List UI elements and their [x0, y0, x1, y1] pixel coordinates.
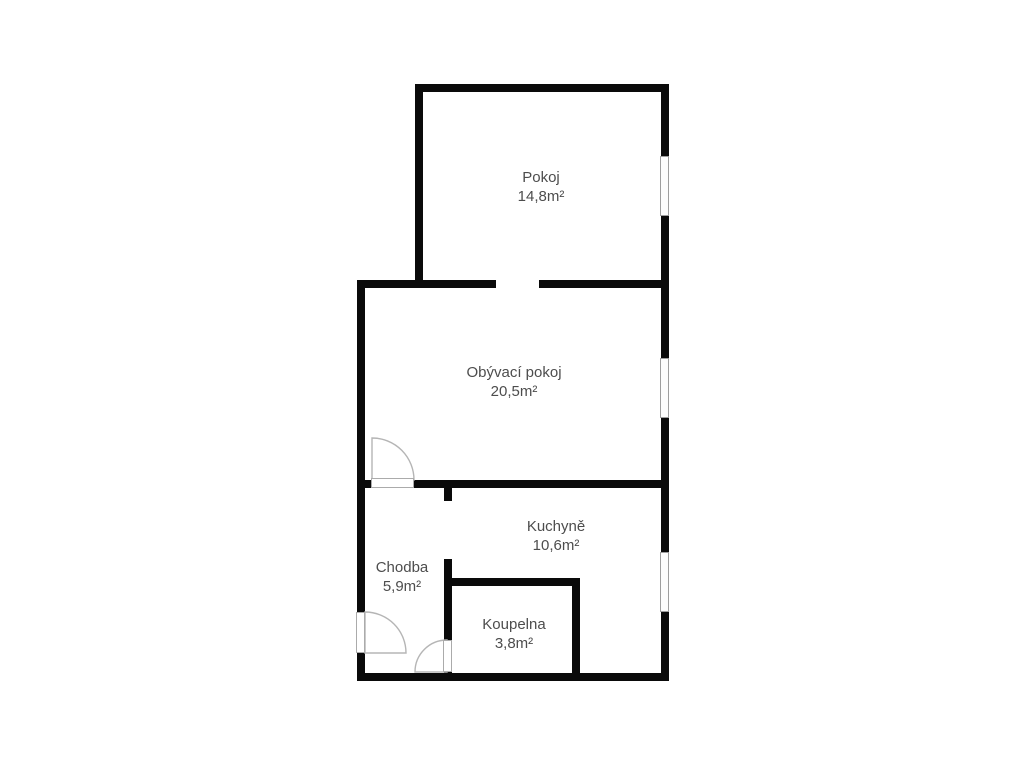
room-label-chodba: Chodba 5,9m² — [376, 558, 429, 596]
pokoj-window — [660, 156, 669, 216]
room-name: Kuchyně — [527, 517, 585, 536]
room-area: 20,5m² — [466, 382, 561, 401]
room-area: 14,8m² — [518, 187, 565, 206]
room-name: Pokoj — [518, 168, 565, 187]
room-area: 3,8m² — [482, 634, 545, 653]
room-label-obyvaci-pokoj: Obývací pokoj 20,5m² — [466, 363, 561, 401]
entrance-door — [356, 612, 365, 653]
room-area: 5,9m² — [376, 577, 429, 596]
room-label-pokoj: Pokoj 14,8m² — [518, 168, 565, 206]
room-name: Koupelna — [482, 615, 545, 634]
room-name: Chodba — [376, 558, 429, 577]
obyvaci-pokoj-door-arc — [372, 438, 414, 480]
koupelna-door — [443, 640, 452, 672]
room-label-kuchyne: Kuchyně 10,6m² — [527, 517, 585, 555]
obyvaci-pokoj-window — [660, 358, 669, 418]
entrance-door-arc — [365, 612, 406, 653]
room-area: 10,6m² — [527, 536, 585, 555]
floor-plan: Pokoj 14,8m² Obývací pokoj 20,5m² Kuchyn… — [0, 0, 1024, 768]
kuchyne-window — [660, 552, 669, 612]
room-label-koupelna: Koupelna 3,8m² — [482, 615, 545, 653]
room-name: Obývací pokoj — [466, 363, 561, 382]
obyvaci-pokoj-door — [371, 478, 414, 488]
